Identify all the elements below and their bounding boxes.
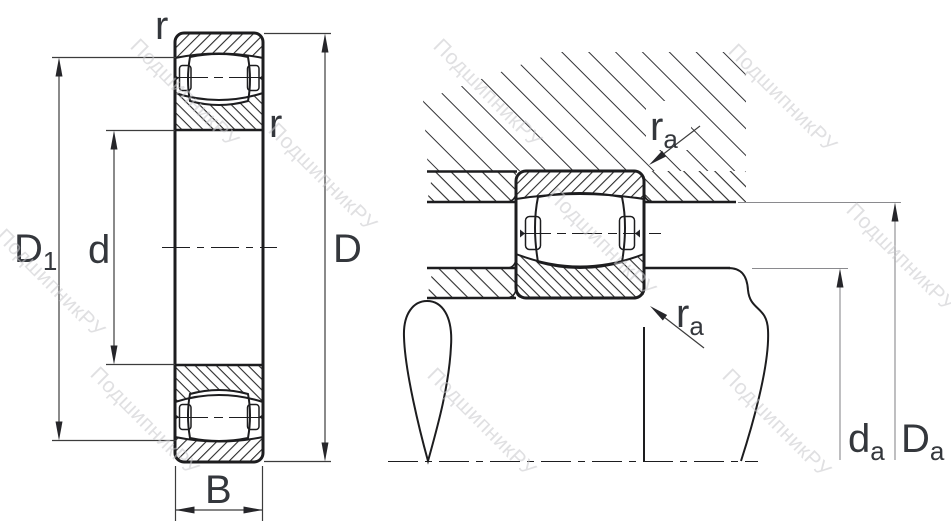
bearing-drawing: r r D1 d D B (0, 0, 951, 532)
watermark-text: ПодшипникРУ (423, 364, 541, 482)
bearing-drawing-page: r r D1 d D B (0, 0, 951, 532)
dimension-da: da (752, 269, 885, 467)
label-B: B (205, 468, 232, 512)
label-D: D (333, 227, 362, 271)
label-ra-bottom: ra (676, 292, 704, 341)
callout-ra-bottom: ra (648, 292, 704, 348)
watermark-text: ПодшипникРУ (264, 119, 382, 237)
label-d: d (88, 228, 110, 272)
watermark-text: ПодшипникРУ (718, 365, 836, 483)
label-r-top: r (155, 4, 168, 48)
label-Da: Da (901, 417, 945, 466)
label-da: da (848, 417, 885, 466)
